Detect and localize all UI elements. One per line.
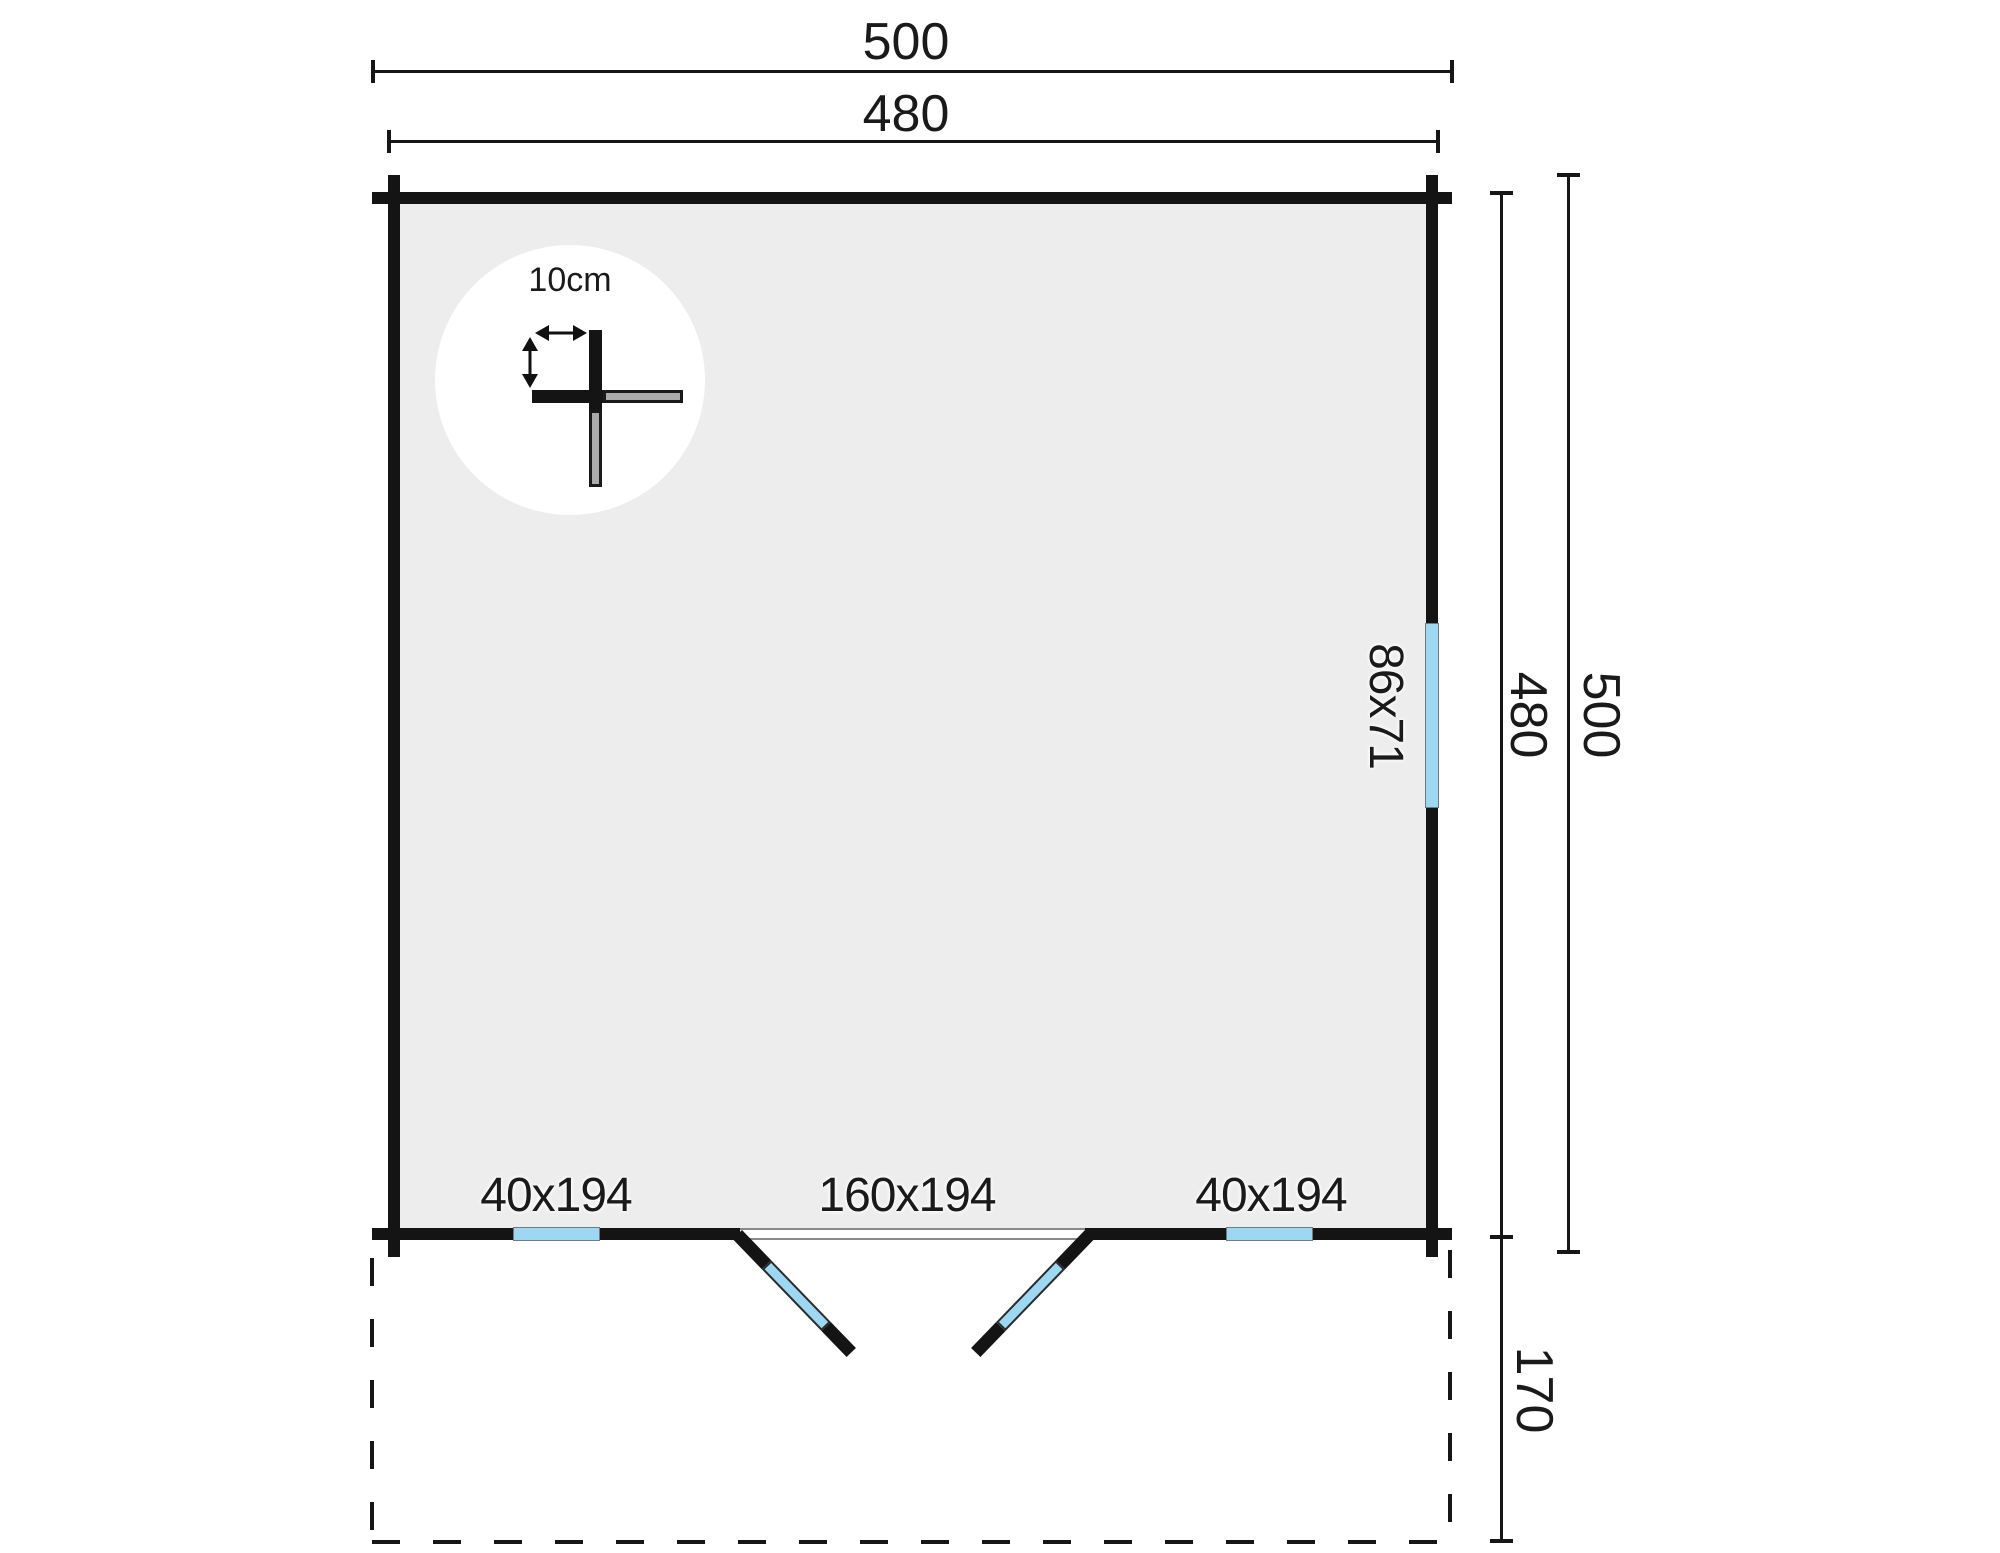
dimension-line-terrace-depth <box>1500 1237 1503 1543</box>
door-size-label: 160x194 <box>807 1172 1007 1220</box>
floor-plan: 10cm <box>0 0 2000 1553</box>
door-leaf-frame <box>971 1322 1005 1357</box>
door-leaf-left <box>733 1230 856 1357</box>
dimension-label-inner-width: 480 <box>806 88 1006 140</box>
terrace-outline-left <box>370 1258 374 1544</box>
width-arrow-icon <box>535 325 587 341</box>
door-threshold <box>740 1228 1085 1240</box>
measure-arrows <box>435 245 705 515</box>
wall-detail-bubble: 10cm <box>435 245 705 515</box>
dimension-line-right-overall <box>1567 175 1570 1253</box>
door-leaf-right <box>971 1230 1094 1357</box>
dimension-label-overall-depth: 500 <box>1575 615 1627 815</box>
window-south-right-size-label: 40x194 <box>1171 1172 1371 1220</box>
dimension-tick <box>387 130 391 153</box>
window-south-left-size-label: 40x194 <box>456 1172 656 1220</box>
dimension-label-terrace-depth: 170 <box>1508 1290 1560 1490</box>
wall-north <box>372 192 1452 204</box>
door-leaf-glass <box>762 1260 831 1331</box>
wall-west <box>388 175 400 1257</box>
height-arrow-icon <box>522 337 538 388</box>
dimension-tick <box>1557 173 1580 177</box>
door-leaf-glass <box>996 1260 1065 1331</box>
dimension-tick <box>1490 191 1513 195</box>
wall-south-segment-3 <box>1085 1228 1226 1240</box>
window-south-left <box>513 1227 600 1241</box>
window-east <box>1425 623 1439 808</box>
window-south-right <box>1226 1227 1313 1241</box>
window-east-size-label: 86x71 <box>1359 606 1411 806</box>
dimension-tick <box>1436 130 1440 153</box>
dimension-tick <box>1557 1250 1580 1254</box>
dimension-label-overall-width: 500 <box>806 16 1006 68</box>
terrace-outline-bottom <box>372 1540 1452 1544</box>
dimension-tick <box>1450 60 1454 83</box>
door-leaf-frame <box>822 1322 856 1357</box>
dimension-tick <box>371 60 375 83</box>
dimension-tick <box>1490 1539 1513 1543</box>
wall-south-segment-1 <box>372 1228 513 1240</box>
terrace-outline-right <box>1448 1250 1452 1544</box>
dimension-label-inner-depth: 480 <box>1502 615 1554 815</box>
wall-south-segment-4 <box>1313 1228 1452 1240</box>
wall-south-segment-2 <box>600 1228 740 1240</box>
